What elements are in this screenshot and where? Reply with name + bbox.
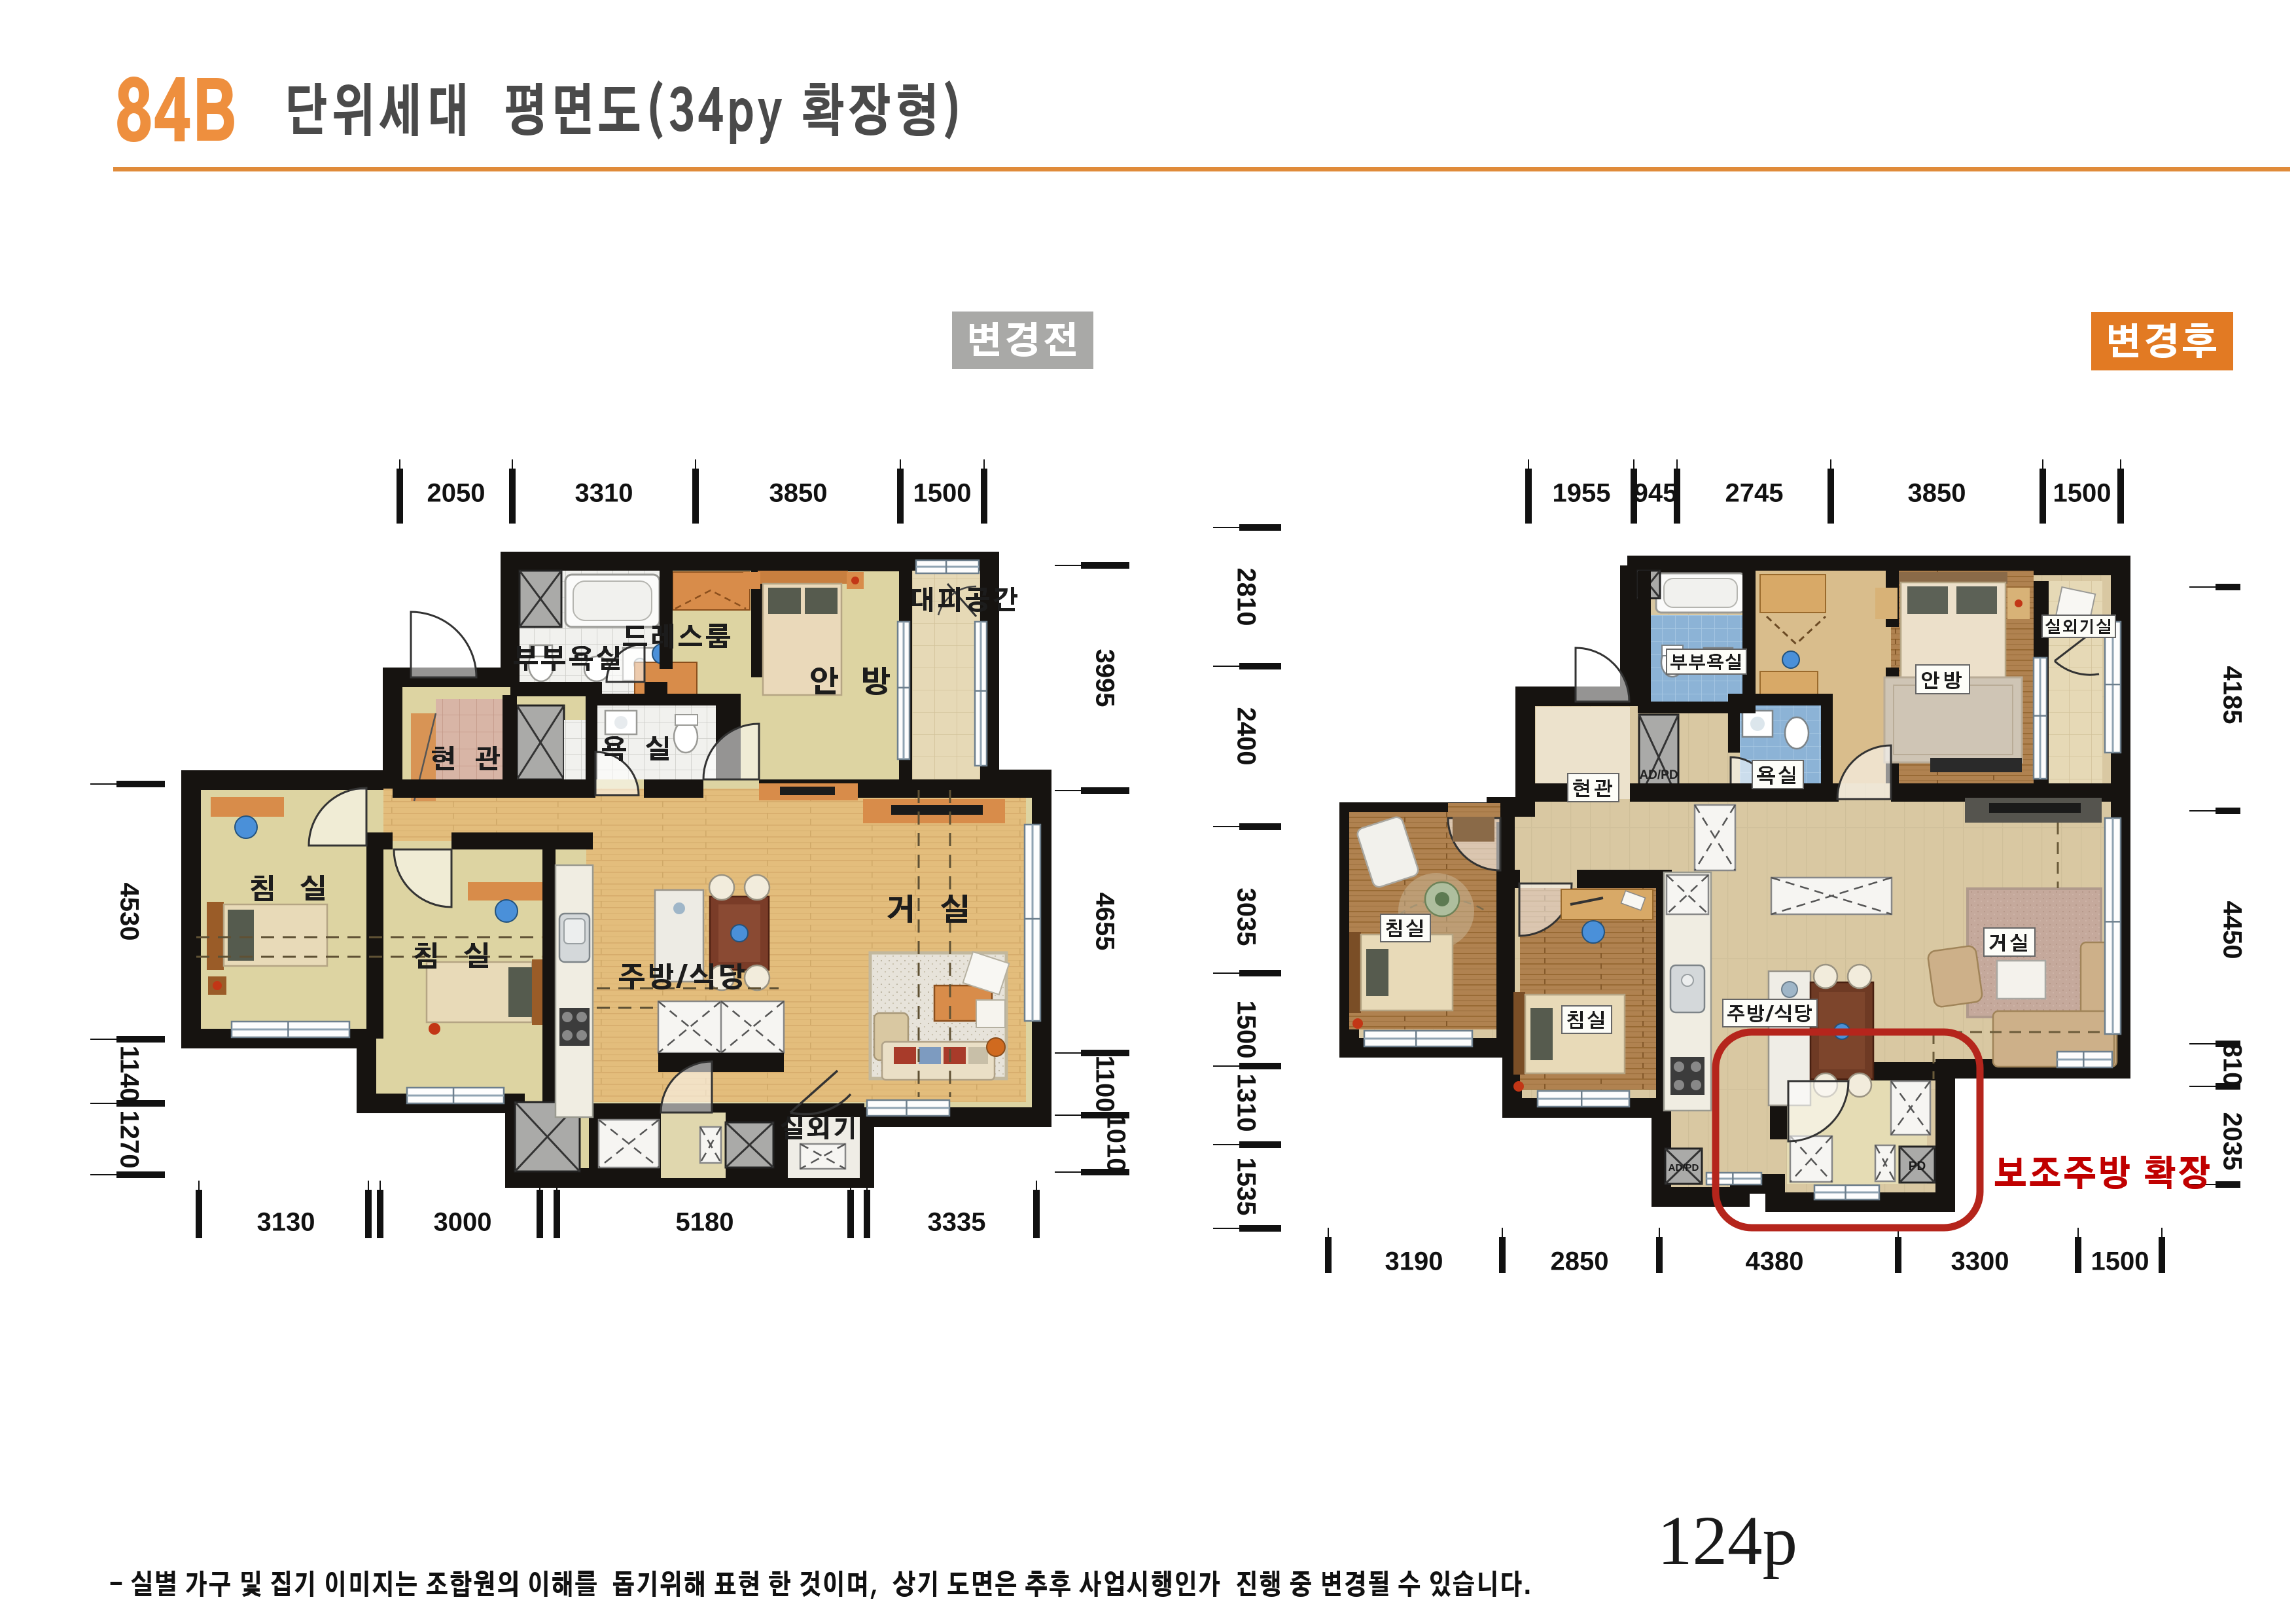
- svg-text:1500: 1500: [1232, 1001, 1261, 1059]
- svg-text:1010: 1010: [1102, 1115, 1131, 1173]
- svg-text:3190: 3190: [1385, 1247, 1443, 1275]
- svg-text:4530: 4530: [115, 883, 144, 941]
- svg-text:1140: 1140: [115, 1046, 144, 1103]
- svg-text:PD: PD: [1909, 1160, 1926, 1173]
- svg-text:2810: 2810: [1232, 568, 1261, 626]
- svg-text:1100: 1100: [1091, 1056, 1120, 1113]
- svg-text:1955: 1955: [1553, 478, 1611, 507]
- svg-text:3000: 3000: [434, 1207, 492, 1236]
- svg-text:1535: 1535: [1232, 1158, 1261, 1216]
- svg-text:AD/PD: AD/PD: [1639, 768, 1678, 782]
- svg-text:3130: 3130: [257, 1207, 315, 1236]
- svg-text:4380: 4380: [1746, 1247, 1804, 1275]
- svg-text:1500: 1500: [2053, 478, 2111, 507]
- svg-text:3850: 3850: [769, 478, 828, 507]
- svg-text:2035: 2035: [2218, 1113, 2247, 1171]
- svg-text:3995: 3995: [1091, 649, 1120, 707]
- svg-text:124p: 124p: [1657, 1503, 1797, 1580]
- svg-text:1500: 1500: [2091, 1247, 2149, 1275]
- svg-text:2050: 2050: [427, 478, 486, 507]
- svg-text:1310: 1310: [1232, 1074, 1261, 1132]
- svg-text:3035: 3035: [1232, 888, 1261, 946]
- svg-text:3310: 3310: [575, 478, 633, 507]
- svg-text:1270: 1270: [115, 1111, 144, 1169]
- svg-text:2400: 2400: [1232, 707, 1261, 766]
- svg-text:810: 810: [2218, 1043, 2247, 1087]
- svg-text:1500: 1500: [913, 478, 972, 507]
- svg-text:945: 945: [1634, 478, 1678, 507]
- svg-text:3300: 3300: [1951, 1247, 2009, 1275]
- svg-text:4450: 4450: [2218, 901, 2247, 959]
- svg-text:AD/PD: AD/PD: [1669, 1162, 1699, 1173]
- svg-text:3850: 3850: [1908, 478, 1966, 507]
- svg-text:5180: 5180: [676, 1207, 734, 1236]
- svg-text:2850: 2850: [1551, 1247, 1609, 1275]
- svg-text:4185: 4185: [2218, 666, 2247, 724]
- svg-text:2745: 2745: [1725, 478, 1784, 507]
- svg-text:3335: 3335: [928, 1207, 986, 1236]
- svg-text:4655: 4655: [1091, 893, 1120, 951]
